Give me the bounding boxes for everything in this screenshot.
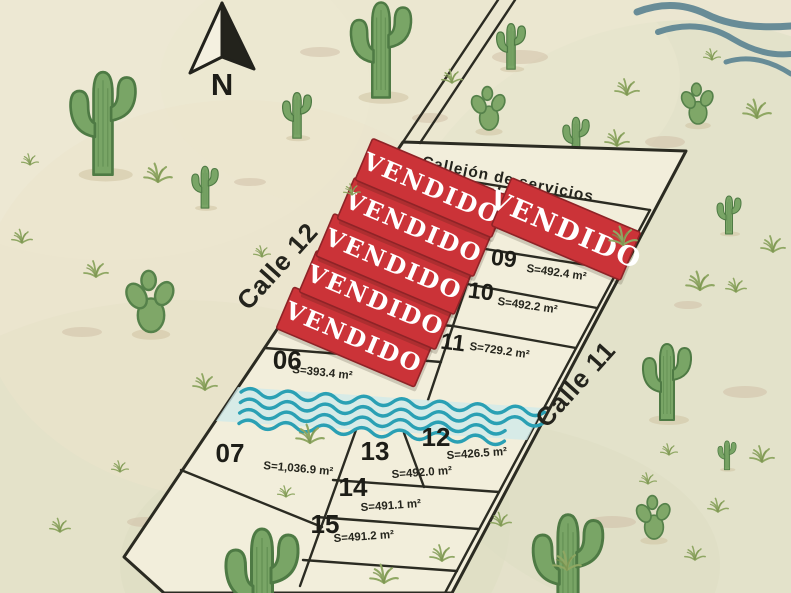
dirt-patch [723,386,767,398]
map-canvas: 09S=492.4 m²10S=492.2 m²11S=729.2 m²06S=… [0,0,791,593]
dirt-patch [234,178,266,186]
dirt-patch [645,136,685,148]
lot-12-number: 12 [422,422,451,452]
lot-07-number: 07 [216,438,245,468]
lot-14-number: 14 [339,472,368,502]
desert-lot-map: 09S=492.4 m²10S=492.2 m²11S=729.2 m²06S=… [0,0,791,593]
lot-13-number: 13 [361,436,390,466]
lot-09-number: 09 [490,244,519,273]
dirt-patch [62,327,102,337]
north-label: N [211,67,233,102]
dirt-patch [300,47,340,57]
dirt-patch [674,301,702,309]
dirt-patch [492,50,548,64]
